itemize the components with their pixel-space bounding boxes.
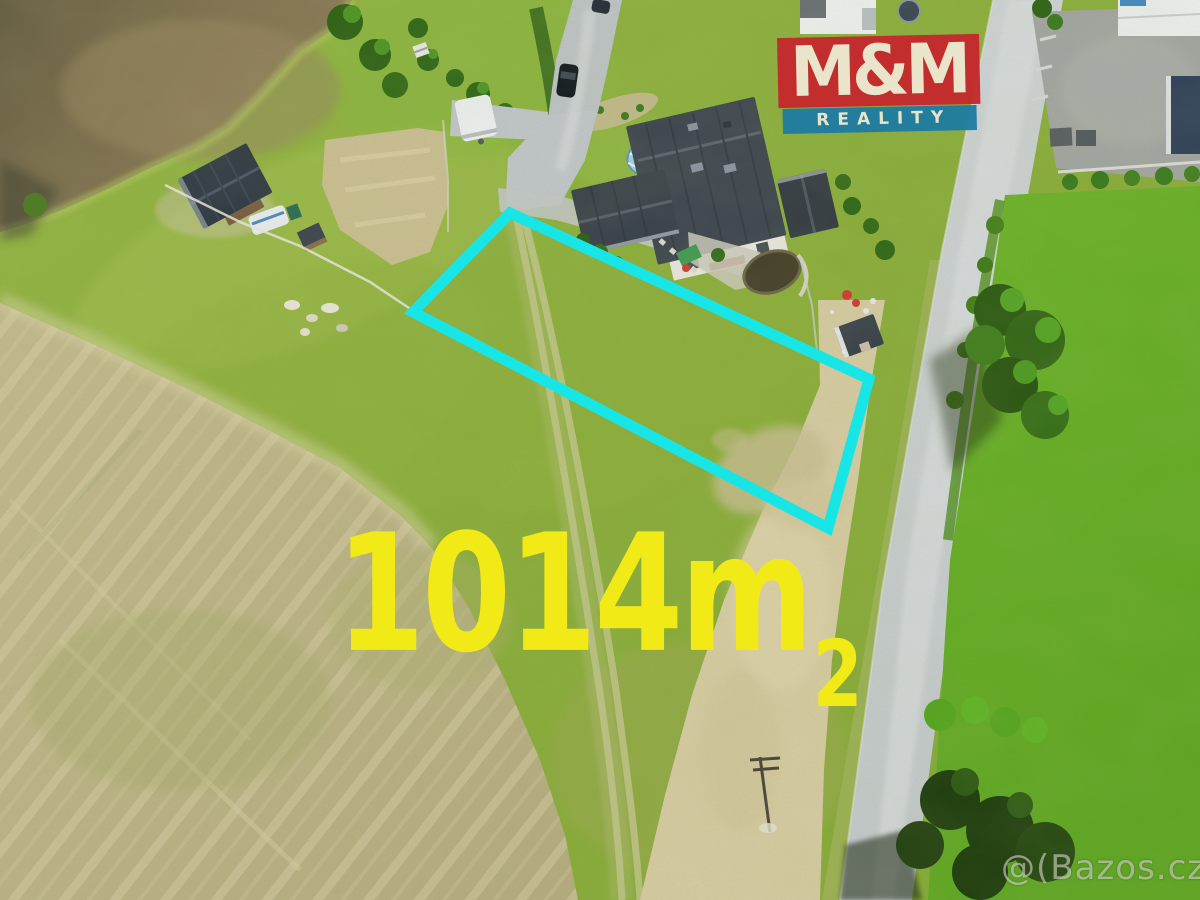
aerial-listing-photo: M&M REALITY 1014m2 @(Bazos.cz: [0, 0, 1200, 900]
aerial-scene: [0, 0, 1200, 900]
bazos-watermark: @(Bazos.cz: [1001, 848, 1200, 888]
plot-area-label: 1014m2: [336, 514, 861, 722]
mm-reality-logo: M&M REALITY: [777, 34, 981, 134]
logo-mm-text: M&M: [790, 32, 968, 109]
area-superscript: 2: [813, 621, 863, 728]
area-value: 1014m: [336, 500, 811, 689]
logo-red-box: M&M: [777, 34, 980, 108]
photo-grain: [0, 0, 1200, 900]
